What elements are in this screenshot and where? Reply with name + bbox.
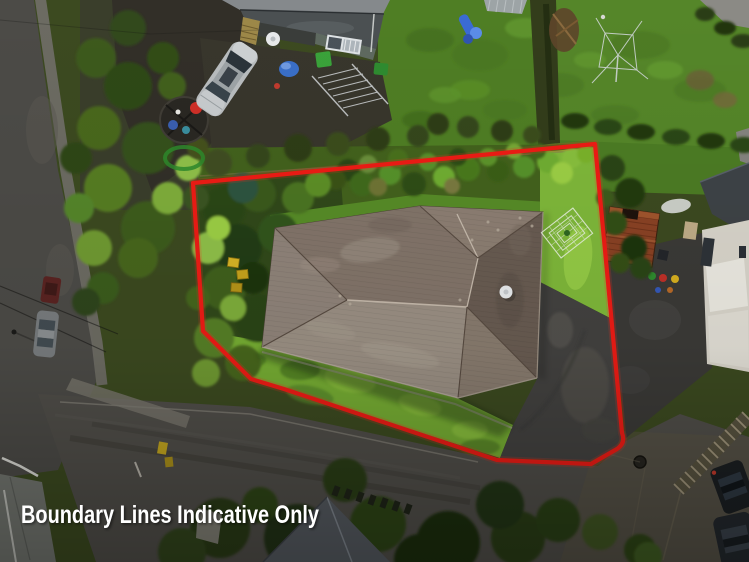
aerial-photo: Boundary Lines Indicative Only Boundary …	[0, 0, 749, 562]
vignette	[0, 0, 749, 562]
caption-text: Boundary Lines Indicative Only	[21, 501, 319, 529]
